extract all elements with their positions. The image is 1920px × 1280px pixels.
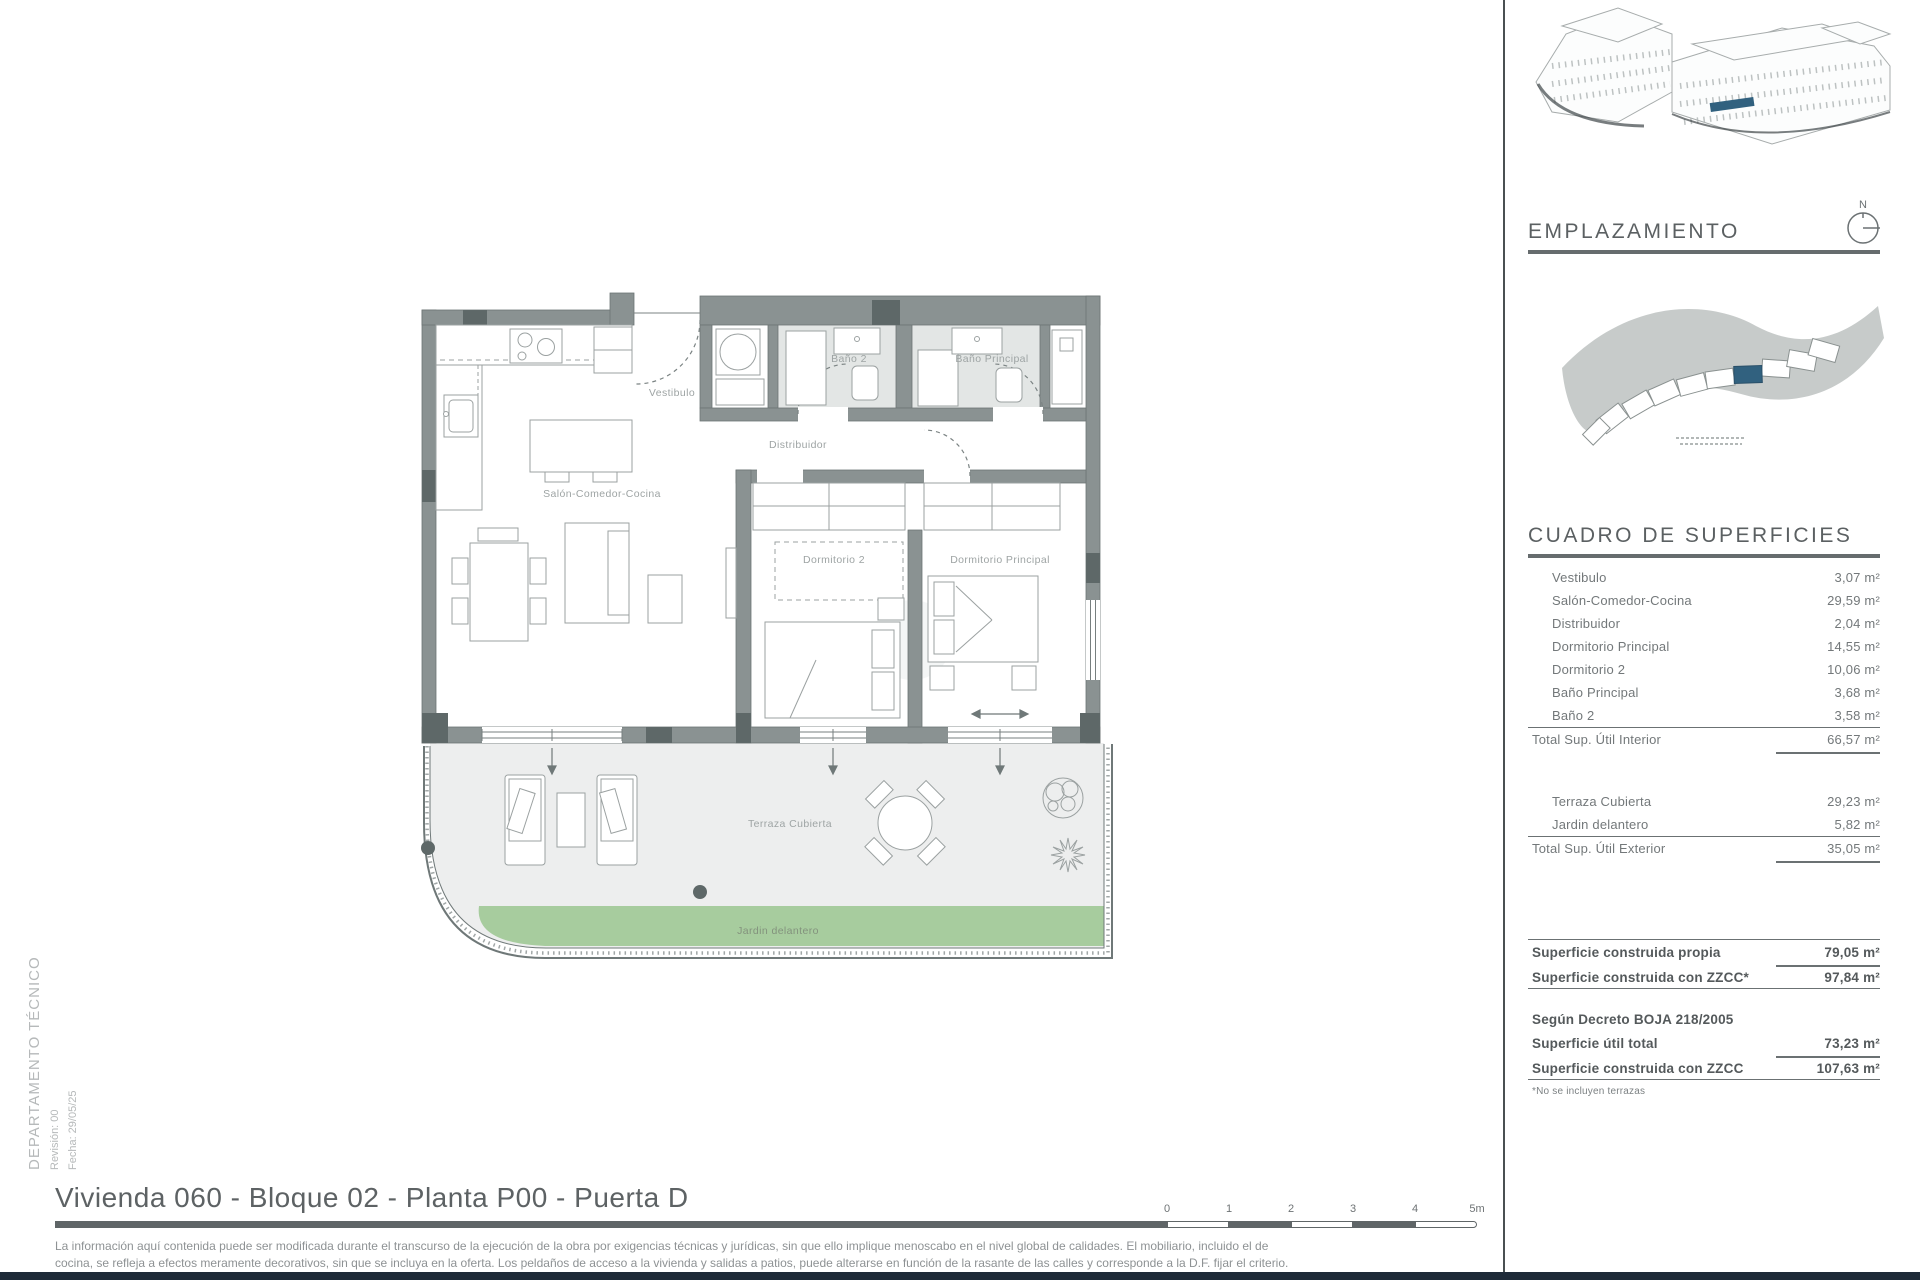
toilet [852, 366, 878, 400]
floor-plan: Vestibulo Salón-Comedor-Cocina Distribui… [340, 230, 1520, 1010]
superficies-title: CUADRO DE SUPERFICIES [1528, 524, 1852, 548]
side-table [648, 575, 682, 623]
building-axonometric [1522, 4, 1918, 172]
table-row: Terraza Cubierta 29,23 m² [1528, 790, 1880, 813]
superficies-table: Vestibulo 3,07 m² Salón-Comedor-Cocina 2… [1528, 566, 1880, 863]
disclaimer-line1: La información aquí contenida puede ser … [55, 1238, 1503, 1255]
value-underline [1776, 861, 1880, 863]
construida-block: Superficie construida propia 79,05 m² Su… [1528, 939, 1880, 1097]
table-rule [1528, 1079, 1880, 1080]
table-row: Superficie construida con ZZCC* 97,84 m² [1528, 967, 1880, 988]
table-row: Dormitorio 2 10,06 m² [1528, 658, 1880, 681]
table-row: Jardin delantero 5,82 m² [1528, 813, 1880, 836]
room-label-vestibulo: Vestibulo [649, 387, 695, 399]
tv-unit [726, 548, 736, 618]
emplazamiento-title: EMPLAZAMIENTO [1528, 220, 1740, 244]
room-label-bano2: Baño 2 [831, 353, 867, 365]
nightstand [878, 598, 904, 620]
nightstand [930, 666, 954, 690]
scale-labels: 0 1 2 3 4 5m [1160, 1203, 1490, 1217]
room-label-dormitorio-principal: Dormitorio Principal [950, 554, 1050, 566]
decreto-heading-row: Según Decreto BOJA 218/2005 [1528, 1007, 1880, 1031]
highlighted-site-unit [1734, 366, 1763, 384]
table-row: Dormitorio Principal 14,55 m² [1528, 635, 1880, 658]
compass-icon: N [1836, 196, 1896, 250]
emplazamiento-rule [1528, 250, 1880, 254]
kitchen-island [530, 420, 632, 472]
site-plan [1556, 282, 1886, 472]
sheet-title: Vivienda 060 - Bloque 02 - Planta P00 - … [55, 1182, 689, 1214]
room-label-distribuidor: Distribuidor [769, 439, 827, 451]
revision-label: Revisión: 00 [46, 935, 64, 1170]
shower-tray [786, 331, 826, 405]
table-row: Superficie construida propia 79,05 m² [1528, 940, 1880, 964]
bottom-accent-bar [0, 1272, 1920, 1280]
room-label-terraza: Terraza Cubierta [748, 818, 832, 830]
hall-closet [1052, 330, 1082, 404]
footnote: *No se incluyen terrazas [1528, 1086, 1880, 1097]
lounger-table [557, 793, 585, 847]
plan-sheet: Vestibulo Salón-Comedor-Cocina Distribui… [0, 0, 1920, 1280]
title-rule [55, 1221, 1167, 1228]
date-label: Fecha: 29/05/25 [64, 935, 82, 1170]
toilet [996, 368, 1022, 402]
room-label-bano-principal: Baño Principal [955, 353, 1028, 365]
total-exterior-row: Total Sup. Útil Exterior 35,05 m² [1528, 837, 1880, 860]
department-label: DEPARTAMENTO TÉCNICO [24, 935, 46, 1170]
room-label-jardin: Jardin delantero [737, 925, 819, 937]
superficies-rule [1528, 554, 1880, 558]
table-row: Salón-Comedor-Cocina 29,59 m² [1528, 589, 1880, 612]
table-row: Baño Principal 3,68 m² [1528, 681, 1880, 704]
title-block-vertical: DEPARTAMENTO TÉCNICO Revisión: 00 Fecha:… [24, 935, 82, 1170]
washer-icon [720, 334, 756, 370]
dining-table [470, 543, 528, 641]
room-label-dormitorio2: Dormitorio 2 [803, 554, 865, 566]
sidebar-divider [1503, 0, 1505, 1272]
total-interior-row: Total Sup. Útil Interior 66,57 m² [1528, 728, 1880, 751]
utility-closet [716, 329, 764, 405]
table-row: Superficie útil total 73,23 m² [1528, 1031, 1880, 1055]
bathtub [918, 350, 958, 406]
table-row: Superficie construida con ZZCC 107,63 m² [1528, 1058, 1880, 1079]
disclaimer: La información aquí contenida puede ser … [55, 1238, 1503, 1271]
table-row: Vestibulo 3,07 m² [1528, 566, 1880, 589]
table-row: Distribuidor 2,04 m² [1528, 612, 1880, 635]
table-row: Baño 2 3,58 m² [1528, 704, 1880, 727]
scale-bar [1167, 1221, 1477, 1228]
room-label-salon: Salón-Comedor-Cocina [543, 488, 661, 500]
nightstand [1012, 666, 1036, 690]
compass-north-label: N [1859, 199, 1867, 211]
disclaimer-line2: cocina, se refleja a efectos meramente d… [55, 1255, 1503, 1272]
round-table [878, 796, 932, 850]
